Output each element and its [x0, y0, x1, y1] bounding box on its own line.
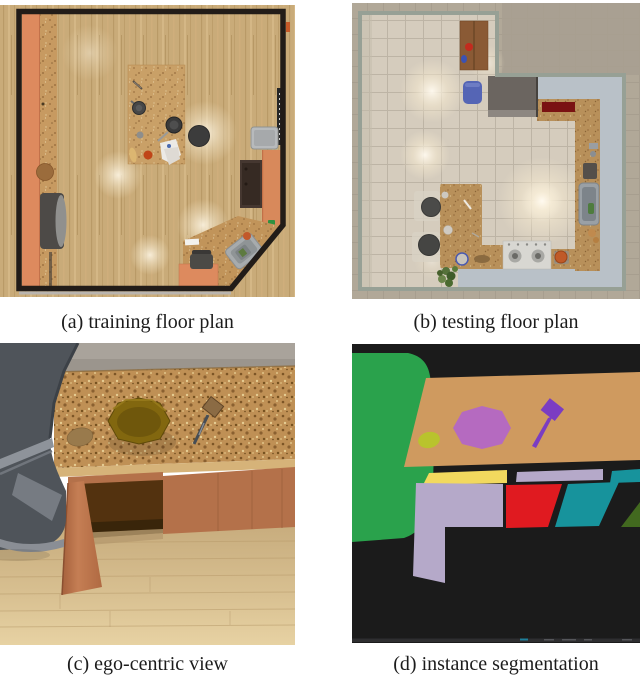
panel-c-ego-centric-view	[0, 343, 295, 645]
figure-2x2-grid: (a) training floor plan (b) testing floo…	[0, 0, 640, 683]
training-floor-plan-image	[0, 5, 295, 297]
caption-c: (c) ego-centric view	[0, 646, 295, 683]
granite-table-top	[54, 366, 295, 468]
seg-footer-strip	[352, 639, 640, 643]
right-counter	[262, 150, 283, 230]
testing-floor-plan-image	[352, 3, 640, 299]
toaster	[583, 163, 597, 179]
seg-teal-sliver-region	[610, 469, 640, 483]
stove	[503, 241, 551, 269]
stool-left	[37, 164, 54, 181]
panel-d-instance-segmentation	[352, 344, 640, 643]
tomato-on-shelf	[465, 43, 473, 51]
caption-a: (a) training floor plan	[0, 301, 295, 343]
counter-top-right	[537, 76, 624, 100]
orange-pot	[555, 251, 567, 263]
red-mat	[542, 102, 575, 112]
small-chair	[190, 254, 213, 269]
panel-a-training-floor-plan	[0, 5, 295, 297]
seg-table-top-region	[404, 372, 640, 467]
stool-center	[189, 126, 210, 147]
panel-b-testing-floor-plan	[352, 3, 640, 299]
caption-d: (d) instance segmentation	[352, 646, 640, 683]
segmentation-image	[352, 344, 640, 643]
center-table	[128, 65, 185, 165]
chair-2	[419, 235, 440, 256]
counter-right	[600, 99, 624, 289]
chair-1	[422, 198, 441, 217]
caption-b: (b) testing floor plan	[352, 301, 640, 343]
left-counter	[22, 14, 40, 290]
tomato	[144, 151, 153, 160]
olive-pot	[108, 398, 170, 444]
ego-centric-image	[0, 343, 295, 645]
bowl	[456, 253, 468, 265]
